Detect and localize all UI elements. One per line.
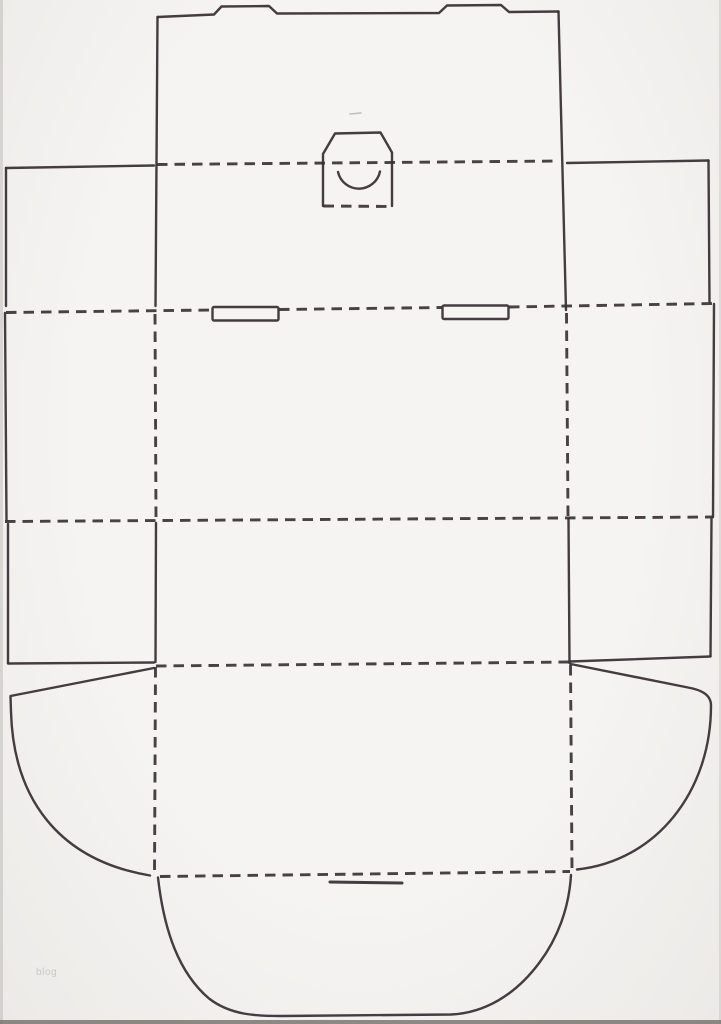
scan-edge-bottom-band xyxy=(0,1020,721,1024)
fold-line-2-middle xyxy=(279,308,442,310)
bottom-right-curved-flap xyxy=(571,664,712,870)
bottom-tongue-flap xyxy=(158,875,571,1016)
lid-right-edge xyxy=(559,12,567,311)
right-flap3-right-edge xyxy=(711,519,712,656)
right-vertical-fold-upper xyxy=(567,313,569,516)
bottom-fold-center-mark xyxy=(330,882,402,883)
right-flap3-bottom-edge xyxy=(570,657,711,662)
box-template-dieline-drawing xyxy=(0,0,721,1024)
tuck-tab-outline xyxy=(323,133,392,207)
fold-line-1 xyxy=(157,161,558,165)
left-flap3-bottom-edge xyxy=(8,663,154,664)
watermark-text: blog xyxy=(36,967,57,978)
right-flap1-top-edge xyxy=(567,161,709,164)
fold-line-5 xyxy=(160,872,570,877)
left-flap1-top-edge xyxy=(6,166,154,169)
left-vertical-fold-upper xyxy=(155,314,156,519)
fold-lines xyxy=(5,161,714,877)
lid-top-edge-with-lock-tabs xyxy=(158,5,559,17)
scan-edge-left xyxy=(0,0,3,1024)
tuck-tab-thumb-notch-arc xyxy=(338,172,380,189)
center-right-edge-lower xyxy=(569,519,570,663)
fold-line-4 xyxy=(156,662,570,666)
cut-lines xyxy=(5,5,714,1016)
right-flap2-right-edge xyxy=(713,304,714,517)
fold-line-2-right xyxy=(509,304,713,308)
center-left-edge-lower xyxy=(156,523,157,662)
right-vertical-fold-lower xyxy=(571,665,573,869)
lid-left-edge xyxy=(156,17,158,306)
left-flap2-left-edge xyxy=(5,313,7,520)
right-flap1-right-edge xyxy=(709,161,710,303)
fold-line-2-left xyxy=(6,310,212,313)
stray-pencil-speck xyxy=(350,113,361,114)
scanned-box-template-page: blog xyxy=(0,0,721,1024)
left-lock-slot xyxy=(213,307,279,321)
left-vertical-fold-lower xyxy=(155,667,156,874)
tuck-tab-bottom-fold xyxy=(324,206,393,207)
bottom-left-curved-flap xyxy=(11,668,155,876)
fold-line-3 xyxy=(5,517,714,522)
right-lock-slot xyxy=(443,306,509,320)
